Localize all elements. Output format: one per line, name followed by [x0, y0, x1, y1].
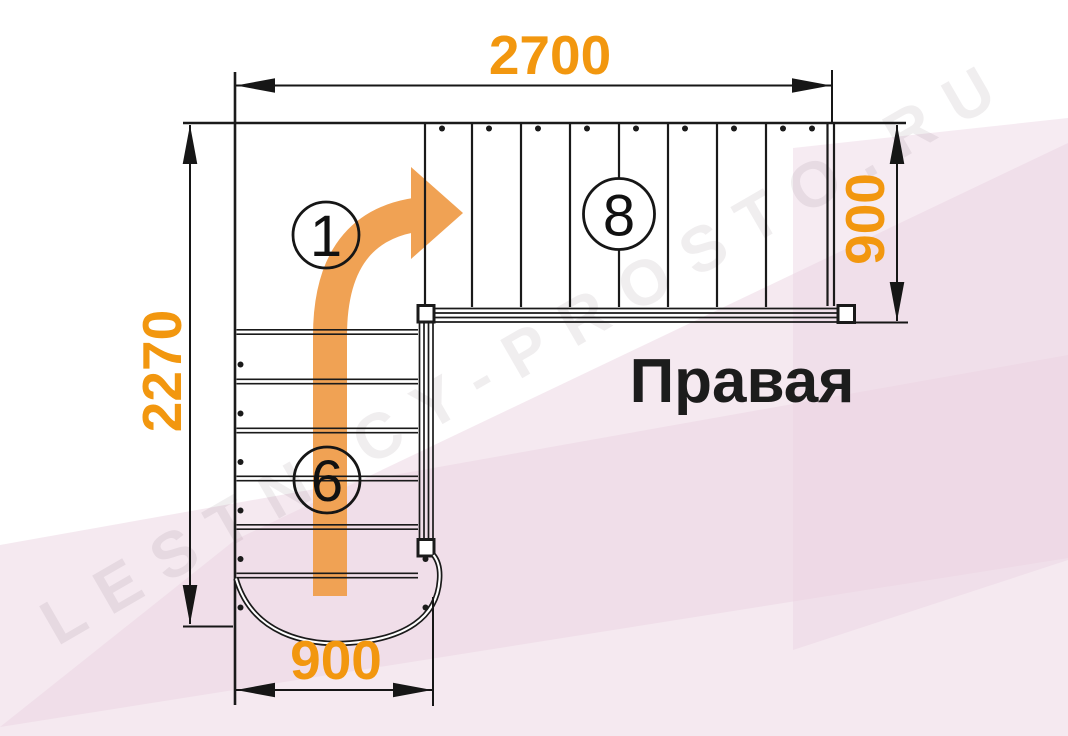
newel-post-bottom	[418, 540, 434, 557]
route-arrow-head-icon	[411, 167, 463, 259]
dim-arrow-left-icon	[236, 78, 275, 93]
page-title: Правая	[602, 348, 882, 416]
dim-arrow-right-icon	[792, 78, 831, 93]
upper-flight-handrail	[435, 309, 838, 323]
upper-flight-baluster-dots	[439, 126, 815, 132]
dim-arrow-down-icon	[183, 585, 198, 624]
marker-direction-start: 1	[310, 204, 342, 269]
staircase-diagram-page: { "diagram": { "title": "Правая", "water…	[0, 0, 1068, 736]
newel-post-junction	[418, 306, 434, 323]
dimension-label-left: 2270	[135, 261, 189, 481]
dimension-label-right: 900	[838, 119, 892, 319]
lower-flight-rail	[420, 323, 434, 540]
route-arrow	[330, 167, 463, 596]
dimension-label-bottom: 900	[236, 633, 436, 687]
dimension-label-top: 2700	[450, 28, 650, 82]
marker-lower-steps-count: 6	[311, 449, 343, 514]
newel-posts	[418, 306, 855, 557]
dim-arrow-up-icon	[183, 125, 198, 164]
marker-upper-steps-count: 8	[603, 184, 635, 249]
step-markers: 1 8 6	[293, 179, 655, 515]
